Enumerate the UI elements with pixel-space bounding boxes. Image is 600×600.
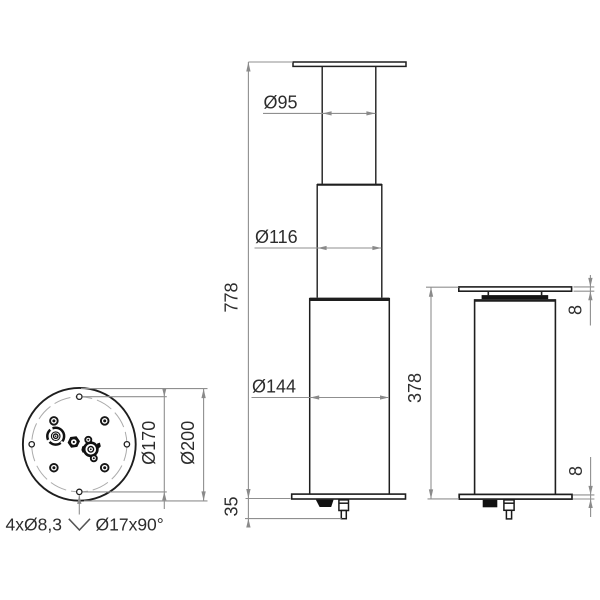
svg-text:Ø200: Ø200 — [178, 421, 198, 465]
svg-text:378: 378 — [405, 373, 425, 403]
svg-text:8: 8 — [566, 466, 586, 476]
svg-text:778: 778 — [221, 282, 241, 312]
svg-text:35: 35 — [221, 496, 241, 516]
svg-text:8: 8 — [565, 305, 585, 315]
svg-text:Ø170: Ø170 — [139, 421, 159, 465]
svg-text:Ø17x90°: Ø17x90° — [96, 515, 164, 535]
svg-text:Ø144: Ø144 — [252, 376, 296, 396]
svg-text:Ø95: Ø95 — [264, 92, 298, 112]
svg-text:Ø116: Ø116 — [255, 227, 298, 247]
svg-text:4xØ8,3: 4xØ8,3 — [6, 515, 62, 535]
